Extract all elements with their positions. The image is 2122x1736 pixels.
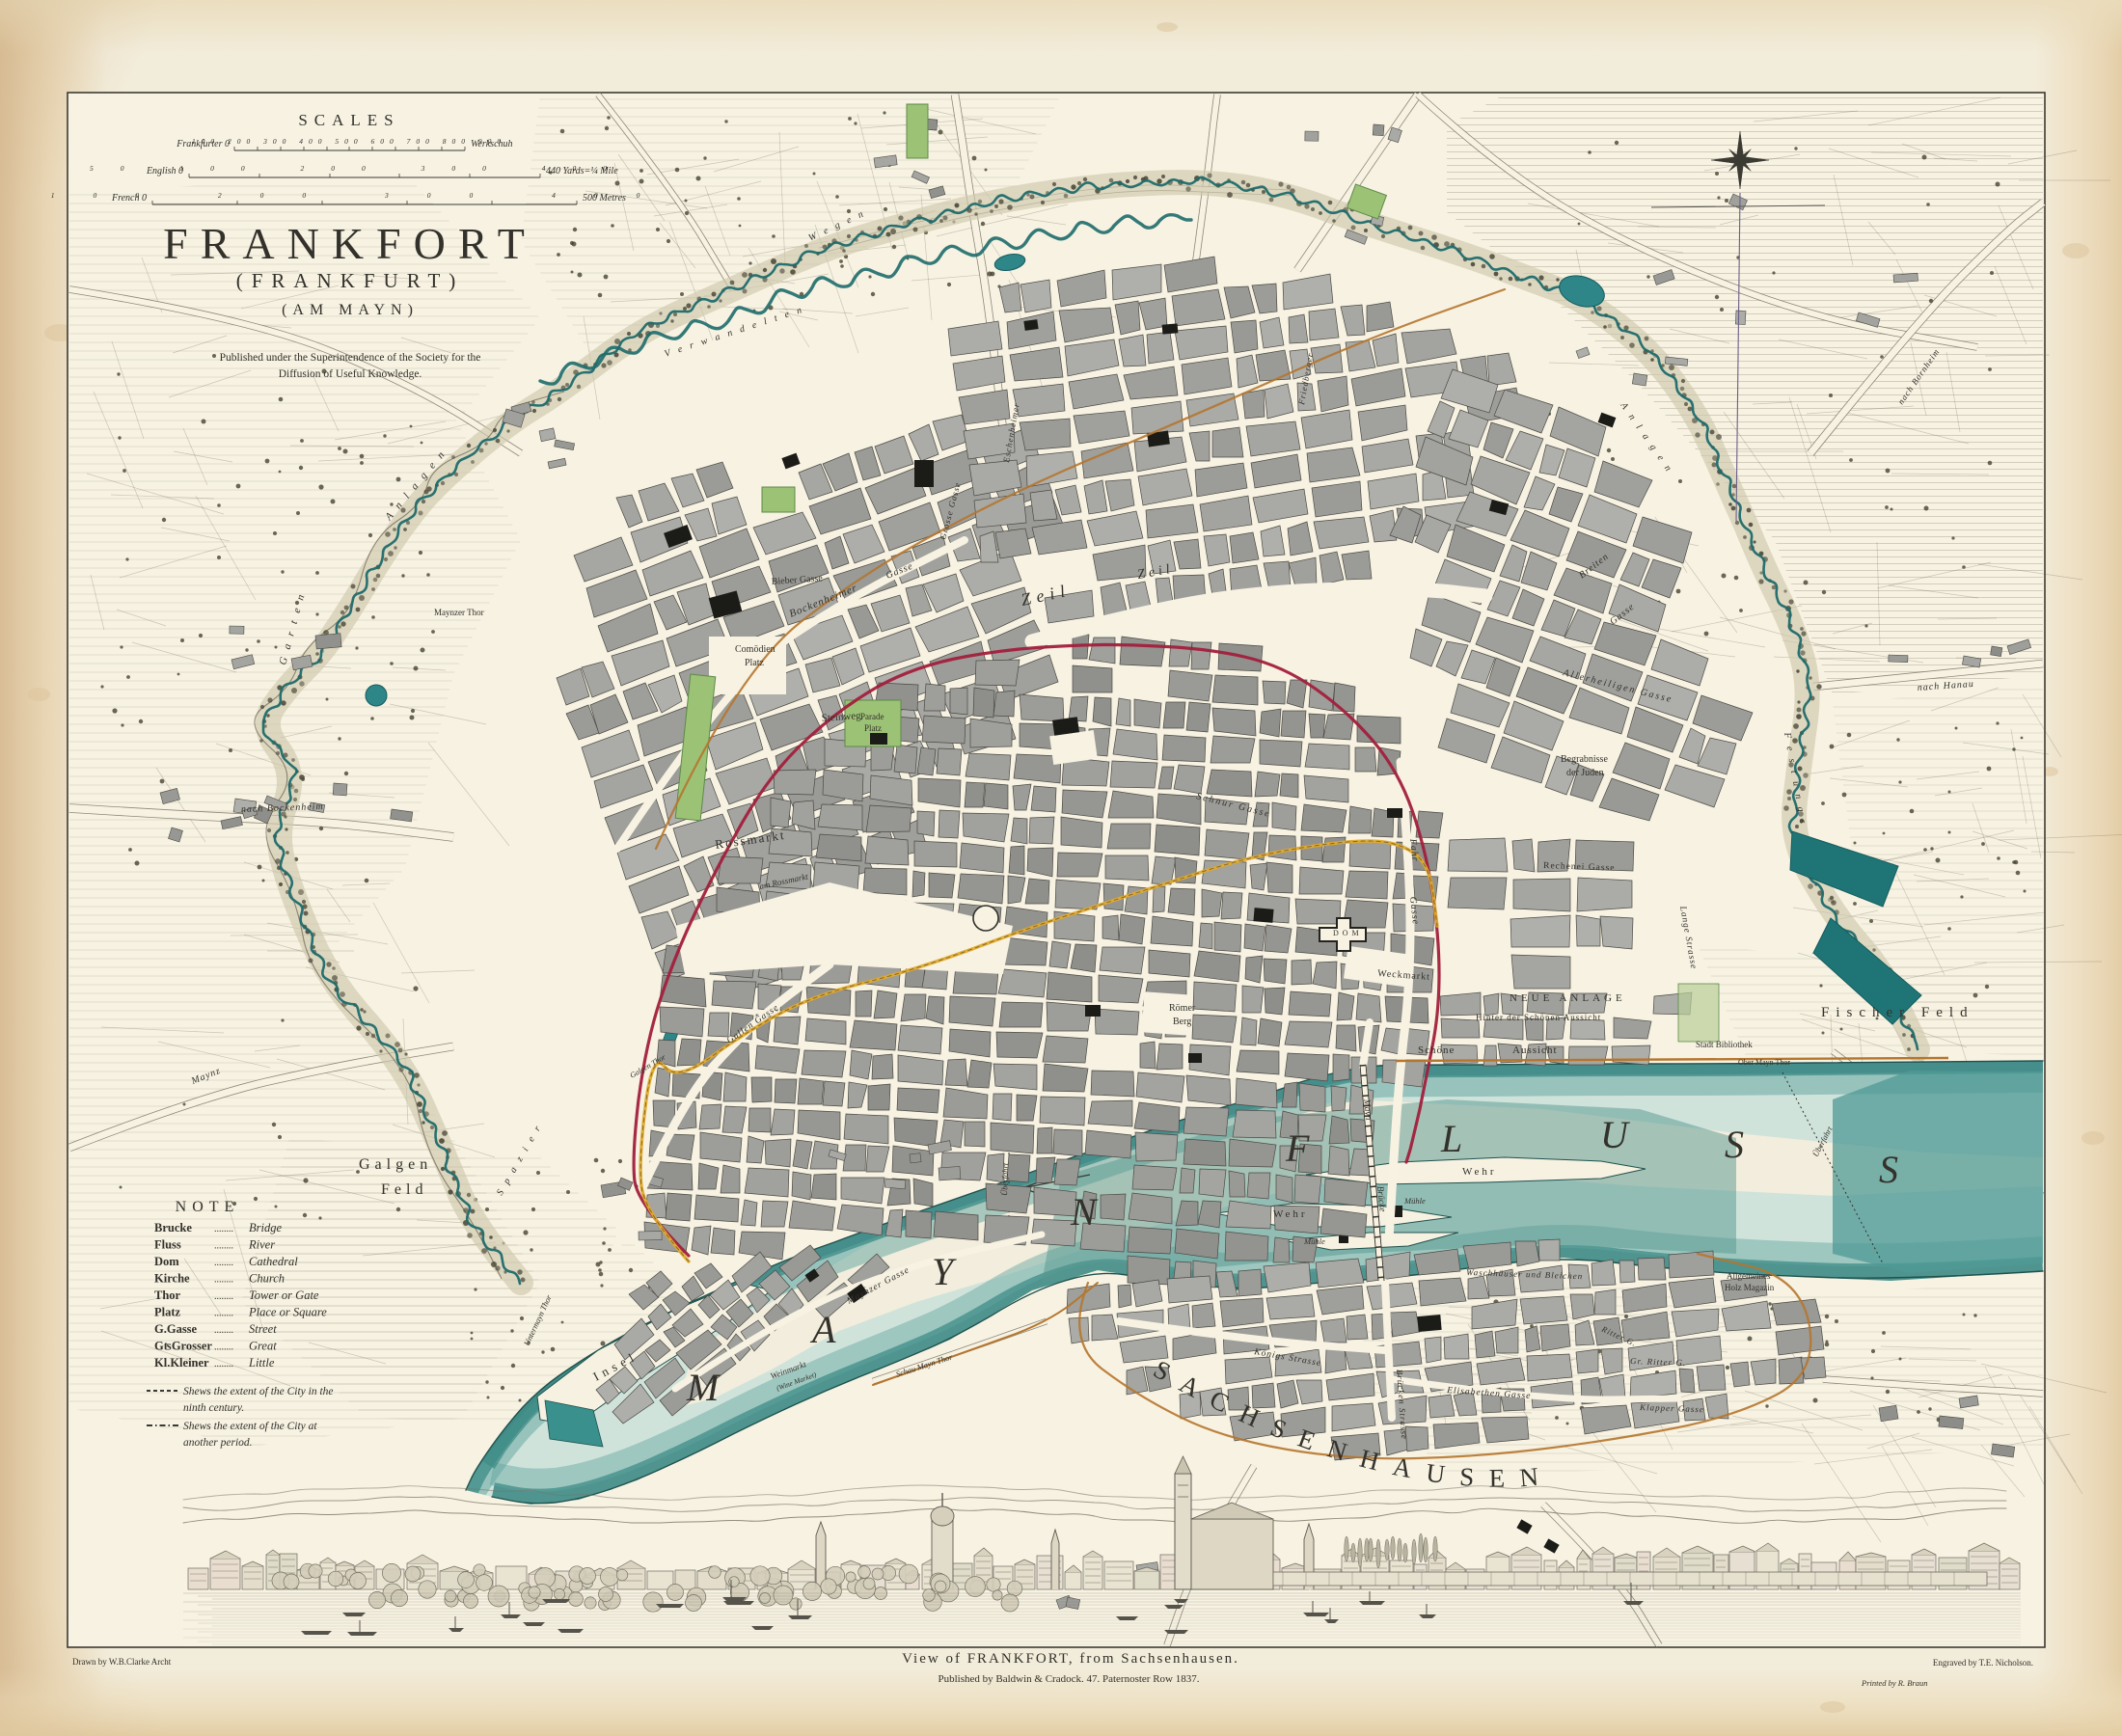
svg-text:Bridge: Bridge xyxy=(249,1221,282,1234)
svg-text:........: ........ xyxy=(214,1258,233,1268)
svg-text:Feld: Feld xyxy=(381,1181,427,1198)
svg-text:Engraved by T.E. Nicholson.: Engraved by T.E. Nicholson. xyxy=(1933,1658,2033,1668)
svg-text:Begrabnisse: Begrabnisse xyxy=(1561,754,1608,765)
svg-text:........: ........ xyxy=(214,1359,233,1370)
svg-text:Church: Church xyxy=(249,1272,285,1286)
svg-text:Kl.Kleiner: Kl.Kleiner xyxy=(154,1356,209,1370)
svg-text:D O M: D O M xyxy=(1333,929,1360,937)
svg-text:Cathedral: Cathedral xyxy=(249,1255,298,1268)
svg-text:Platz: Platz xyxy=(864,723,882,733)
svg-text:Kirche: Kirche xyxy=(154,1272,190,1286)
svg-text:Published by Baldwin & Cradock: Published by Baldwin & Cradock. 47. Pate… xyxy=(938,1673,1199,1685)
svg-text:50 100 200 300 400: 50 100 200 300 400 xyxy=(90,164,634,173)
svg-text:Published under the Superinten: Published under the Superintendence of t… xyxy=(220,352,481,364)
svg-text:M: M xyxy=(686,1366,721,1409)
svg-text:FRANKFORT: FRANKFORT xyxy=(163,219,537,268)
svg-text:Place or Square: Place or Square xyxy=(248,1306,327,1319)
svg-text:Fluss: Fluss xyxy=(154,1238,181,1252)
svg-text:(FRANKFURT): (FRANKFURT) xyxy=(236,269,465,292)
svg-text:Ober Mayn Thor: Ober Mayn Thor xyxy=(1738,1058,1790,1067)
svg-text:GʦGrosser: GʦGrosser xyxy=(154,1340,212,1353)
svg-text:L: L xyxy=(1440,1117,1462,1160)
svg-text:Tower or Gate: Tower or Gate xyxy=(249,1288,319,1302)
svg-text:Platz: Platz xyxy=(745,658,765,668)
svg-text:F: F xyxy=(1285,1126,1310,1170)
svg-text:NEUE ANLAGE: NEUE ANLAGE xyxy=(1510,992,1626,1004)
svg-text:Drawn by W.B.Clarke Archt: Drawn by W.B.Clarke Archt xyxy=(72,1657,172,1667)
svg-text:........: ........ xyxy=(214,1343,233,1353)
svg-text:Diffusion of Useful Knowledge.: Diffusion of Useful Knowledge. xyxy=(279,368,422,380)
svg-text:Wehr: Wehr xyxy=(1462,1166,1497,1178)
svg-text:another period.: another period. xyxy=(183,1437,253,1449)
svg-text:Aussicht: Aussicht xyxy=(1512,1044,1558,1056)
svg-text:100 200 300 400 500 600 700 80: 100 200 300 400 500 600 700 800 900 xyxy=(192,137,506,146)
svg-text:........: ........ xyxy=(214,1275,233,1286)
svg-text:SCALES: SCALES xyxy=(298,111,399,129)
svg-text:NOTE: NOTE xyxy=(176,1199,240,1215)
svg-text:Mühle: Mühle xyxy=(1303,1236,1325,1246)
svg-text:Allgemeines: Allgemeines xyxy=(1727,1271,1771,1281)
svg-text:ninth century.: ninth century. xyxy=(183,1402,244,1414)
svg-text:(AM MAYN): (AM MAYN) xyxy=(282,302,419,318)
svg-text:Printed by R. Braun: Printed by R. Braun xyxy=(1861,1678,1927,1688)
svg-text:S: S xyxy=(1879,1148,1898,1191)
svg-text:Holz Magazin: Holz Magazin xyxy=(1725,1283,1775,1292)
svg-text:........: ........ xyxy=(214,1325,233,1336)
svg-text:Galgen: Galgen xyxy=(359,1156,432,1173)
svg-text:Gr. Ritter G.: Gr. Ritter G. xyxy=(1630,1356,1686,1368)
svg-text:A: A xyxy=(809,1308,836,1351)
svg-text:View of FRANKFORT, from Sa: View of FRANKFORT, from Sachsenhausen. xyxy=(902,1651,1239,1667)
svg-text:100 200 300 400: 100 200 300 400 xyxy=(51,191,679,200)
svg-text:Berg: Berg xyxy=(1173,1017,1191,1027)
svg-text:........: ........ xyxy=(214,1291,233,1302)
svg-text:Thor: Thor xyxy=(154,1288,181,1302)
svg-text:Shews the extent of the City a: Shews the extent of the City at xyxy=(183,1421,317,1432)
svg-text:Dom: Dom xyxy=(154,1255,179,1268)
svg-text:........: ........ xyxy=(214,1241,233,1252)
svg-text:N: N xyxy=(1070,1190,1099,1234)
svg-text:Hinter der Schönen Aussicht: Hinter der Schönen Aussicht xyxy=(1476,1013,1601,1022)
svg-text:Fischer Feld: Fischer Feld xyxy=(1821,1005,1974,1020)
svg-text:Maynzer Thor: Maynzer Thor xyxy=(434,608,484,617)
svg-text:Schöne: Schöne xyxy=(1418,1044,1455,1056)
svg-text:U: U xyxy=(1600,1113,1631,1156)
svg-text:S: S xyxy=(1725,1123,1744,1166)
svg-text:Stadt Bibliothek: Stadt Bibliothek xyxy=(1696,1040,1753,1049)
svg-text:Street: Street xyxy=(249,1322,277,1336)
svg-text:Comödien: Comödien xyxy=(735,644,775,655)
svg-text:Little: Little xyxy=(248,1356,275,1370)
svg-text:Römer: Römer xyxy=(1169,1003,1196,1014)
svg-text:Mühle: Mühle xyxy=(1403,1196,1426,1206)
svg-text:G.Gasse: G.Gasse xyxy=(154,1322,198,1336)
svg-text:Überfahrt: Überfahrt xyxy=(999,1162,1010,1196)
svg-text:Parade: Parade xyxy=(860,712,884,721)
svg-text:Platz: Platz xyxy=(154,1306,181,1319)
svg-text:Great: Great xyxy=(249,1340,277,1353)
svg-text:........: ........ xyxy=(214,1309,233,1319)
svg-text:Brucke: Brucke xyxy=(154,1221,192,1234)
svg-text:........: ........ xyxy=(214,1224,233,1234)
svg-text:der Juden: der Juden xyxy=(1566,768,1604,778)
svg-text:River: River xyxy=(248,1238,275,1252)
svg-text:Wehr: Wehr xyxy=(1273,1208,1308,1220)
svg-text:Y: Y xyxy=(932,1250,957,1293)
svg-text:Shews the extent of the City i: Shews the extent of the City in the xyxy=(183,1386,334,1397)
